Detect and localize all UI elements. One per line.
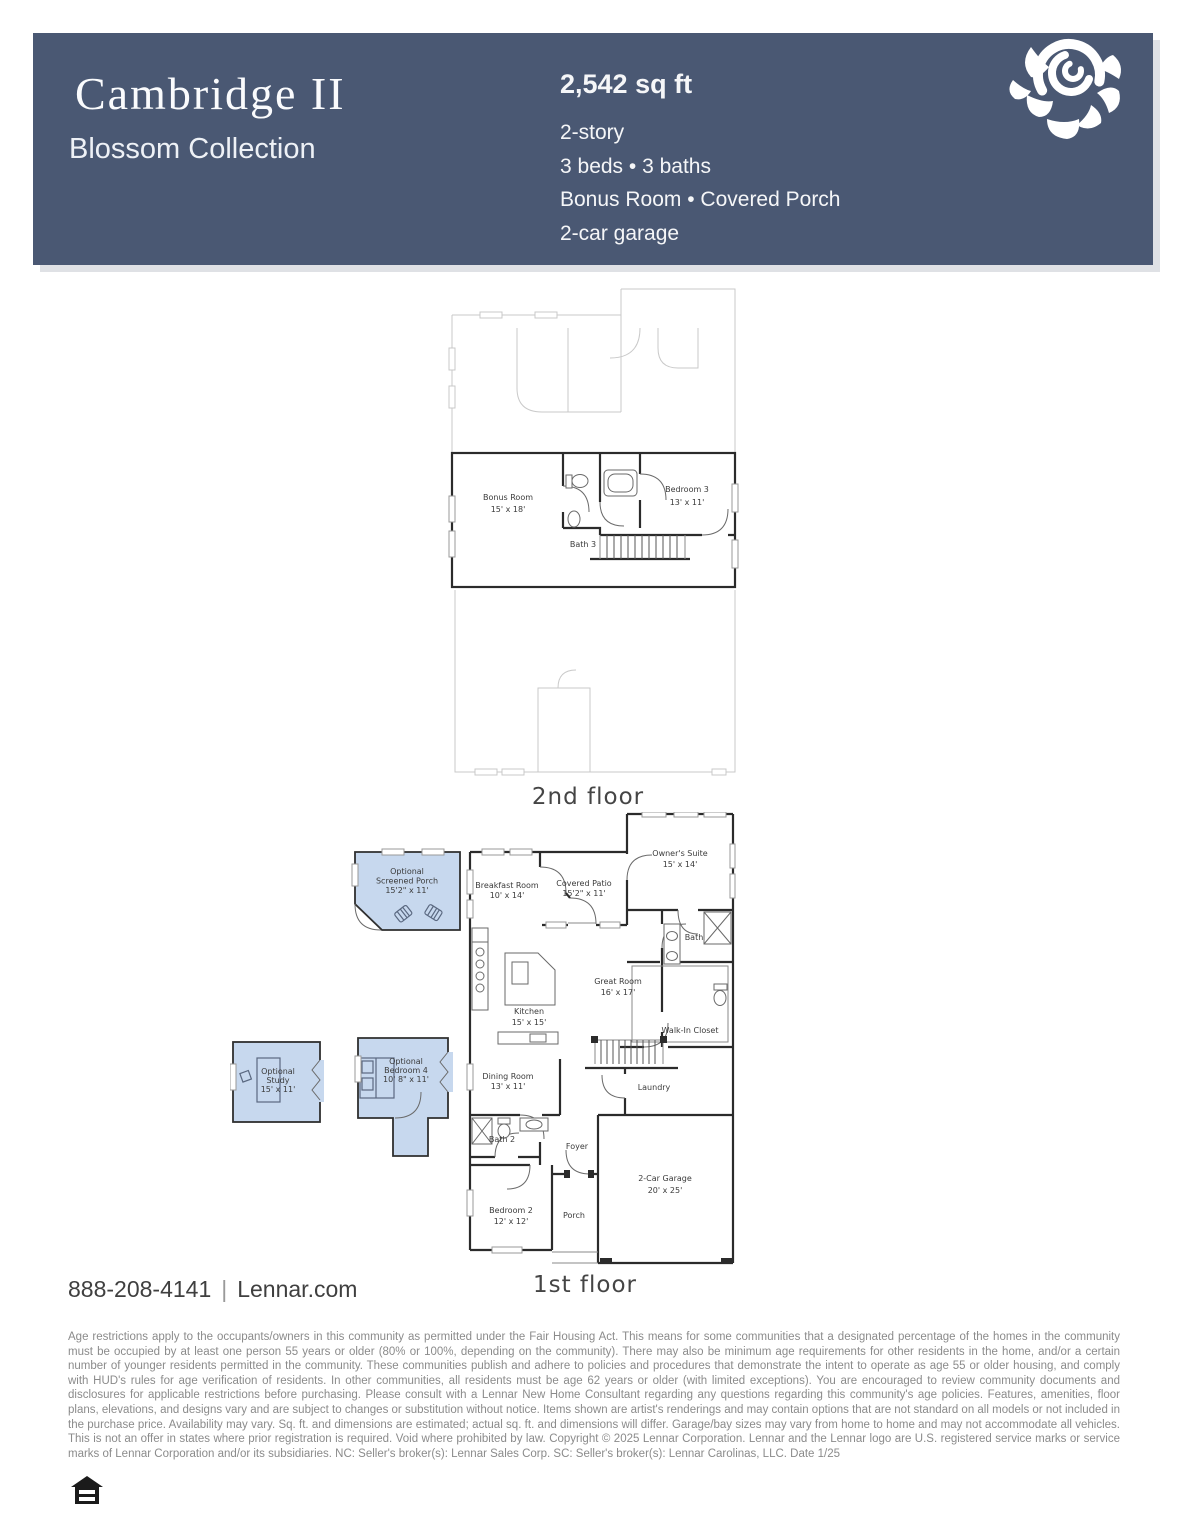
room-label-owners-suite: Owner's Suite [652, 849, 708, 858]
plan-title: Cambridge II [75, 67, 346, 120]
flyer-page: Cambridge II Blossom Collection 2,542 sq… [0, 0, 1187, 1536]
website-link: Lennar.com [237, 1276, 357, 1302]
door-arcs [495, 855, 698, 1263]
spec-bonus-porch: Bonus Room • Covered Porch [560, 183, 841, 217]
room-dims-covered-patio: 15'2" x 11' [562, 889, 605, 898]
optional-bedroom4: Optional Bedroom 4 10' 8" x 11' [355, 1038, 453, 1156]
ghost-footprint-upper [449, 289, 735, 453]
room-label-bath3: Bath 3 [570, 540, 596, 549]
room-dims-study: 15' x 11' [261, 1085, 296, 1094]
room-label-study: Optional [261, 1067, 295, 1076]
equal-housing-opportunity-icon [70, 1476, 104, 1508]
room-label-bedroom4: Optional [389, 1057, 423, 1066]
first-floor-plan: Optional Screened Porch 15'2" x 11' Opti… [230, 812, 760, 1304]
floor2-caption: 2nd floor [532, 784, 644, 810]
floor1-caption: 1st floor [533, 1272, 637, 1298]
room-dims-screened-porch: 15'2" x 11' [385, 886, 428, 895]
room-label-bedroom3: Bedroom 3 [665, 485, 709, 494]
room-label-laundry: Laundry [638, 1083, 671, 1092]
contact-divider: | [221, 1276, 227, 1302]
room-label-screened-porch: Screened Porch [376, 877, 438, 886]
contact-line: 888-208-4141|Lennar.com [68, 1276, 357, 1303]
owners-bath-fixtures [632, 912, 731, 1042]
spec-garage: 2-car garage [560, 217, 841, 251]
room-dims-dining: 13' x 11' [491, 1082, 526, 1091]
room-dims-great-room: 16' x 17' [601, 988, 636, 997]
room-label-bath2: Bath 2 [489, 1135, 515, 1144]
room-label-garage: 2-Car Garage [638, 1174, 692, 1183]
bath3-fixtures [566, 470, 637, 527]
room-dims-garage: 20' x 25' [648, 1186, 683, 1195]
second-floor-walls [449, 453, 738, 587]
ghost-footprint-lower [455, 590, 735, 775]
square-footage: 2,542 sq ft [560, 69, 841, 100]
room-dims-bedroom4: 10' 8" x 11' [383, 1075, 429, 1084]
door-posts [564, 1170, 733, 1263]
optional-screened-porch: Optional Screened Porch 15'2" x 11' [352, 849, 460, 930]
room-label-bedroom2: Bedroom 2 [489, 1206, 533, 1215]
lennar-rose-logo-icon [1001, 33, 1131, 149]
legal-disclaimer: Age restrictions apply to the occupants/… [68, 1330, 1120, 1461]
room-dims-owners-suite: 15' x 14' [663, 860, 698, 869]
phone-number: 888-208-4141 [68, 1276, 211, 1302]
room-dims-bedroom2: 12' x 12' [494, 1217, 529, 1226]
room-dims-breakfast: 10' x 14' [490, 891, 525, 900]
room-label-porch: Porch [563, 1211, 585, 1220]
collection-name: Blossom Collection [69, 133, 316, 166]
spec-list: 2,542 sq ft 2-story 3 beds • 3 baths Bon… [560, 69, 841, 250]
room-label-great-room: Great Room [594, 977, 642, 986]
optional-study: Optional Study 15' x 11' [230, 1042, 324, 1122]
room-label-covered-patio: Covered Patio [556, 879, 612, 888]
room-label-bonus: Bonus Room [483, 493, 533, 502]
second-floor-plan: Bonus Room 15' x 18' Bath 3 Bedroom 3 13… [440, 288, 760, 812]
room-label-screened-porch: Optional [390, 867, 424, 876]
room-label-foyer: Foyer [566, 1142, 589, 1151]
stairs [600, 535, 685, 559]
stairs [591, 1036, 667, 1064]
room-label-bedroom4: Bedroom 4 [384, 1066, 428, 1075]
room-label-bath: Bath [685, 933, 704, 942]
room-label-walk-in-closet: Walk-In Closet [662, 1026, 719, 1035]
room-dims-kitchen: 15' x 15' [512, 1018, 547, 1027]
room-label-breakfast: Breakfast Room [475, 881, 539, 890]
room-label-study: Study [266, 1076, 289, 1085]
room-label-dining: Dining Room [482, 1072, 533, 1081]
room-label-kitchen: Kitchen [514, 1007, 544, 1016]
room-dims-bedroom3: 13' x 11' [670, 498, 705, 507]
spec-stories: 2-story [560, 116, 841, 150]
spec-beds-baths: 3 beds • 3 baths [560, 150, 841, 184]
room-dims-bonus: 15' x 18' [491, 505, 526, 514]
header-banner: Cambridge II Blossom Collection 2,542 sq… [33, 33, 1153, 265]
